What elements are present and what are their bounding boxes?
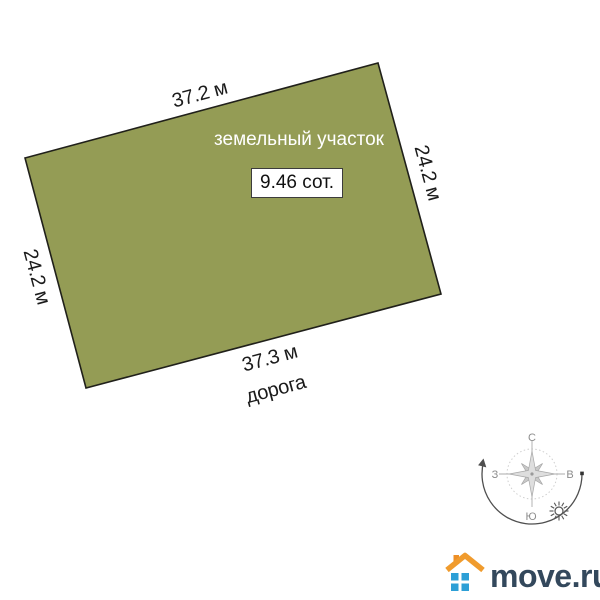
land-plot-diagram: 37.2 м 24.2 м 24.2 м 37.3 м дорога земел… [0,0,600,600]
compass-label-east: В [566,469,573,481]
compass-label-south: Ю [525,511,536,523]
window-squares [451,573,469,591]
sun-path-start-dot [580,472,584,476]
compass-layer: С Ю З В [0,0,600,600]
logo-text: move.ru [490,560,600,592]
moveru-logo[interactable]: move.ru [443,549,600,593]
compass-label-north: С [528,432,536,444]
house-icon [443,549,487,593]
sun-path-arrowhead [478,459,486,468]
compass-label-west: З [492,469,499,481]
sun-icon [550,502,569,521]
compass-center-dot [530,472,533,475]
